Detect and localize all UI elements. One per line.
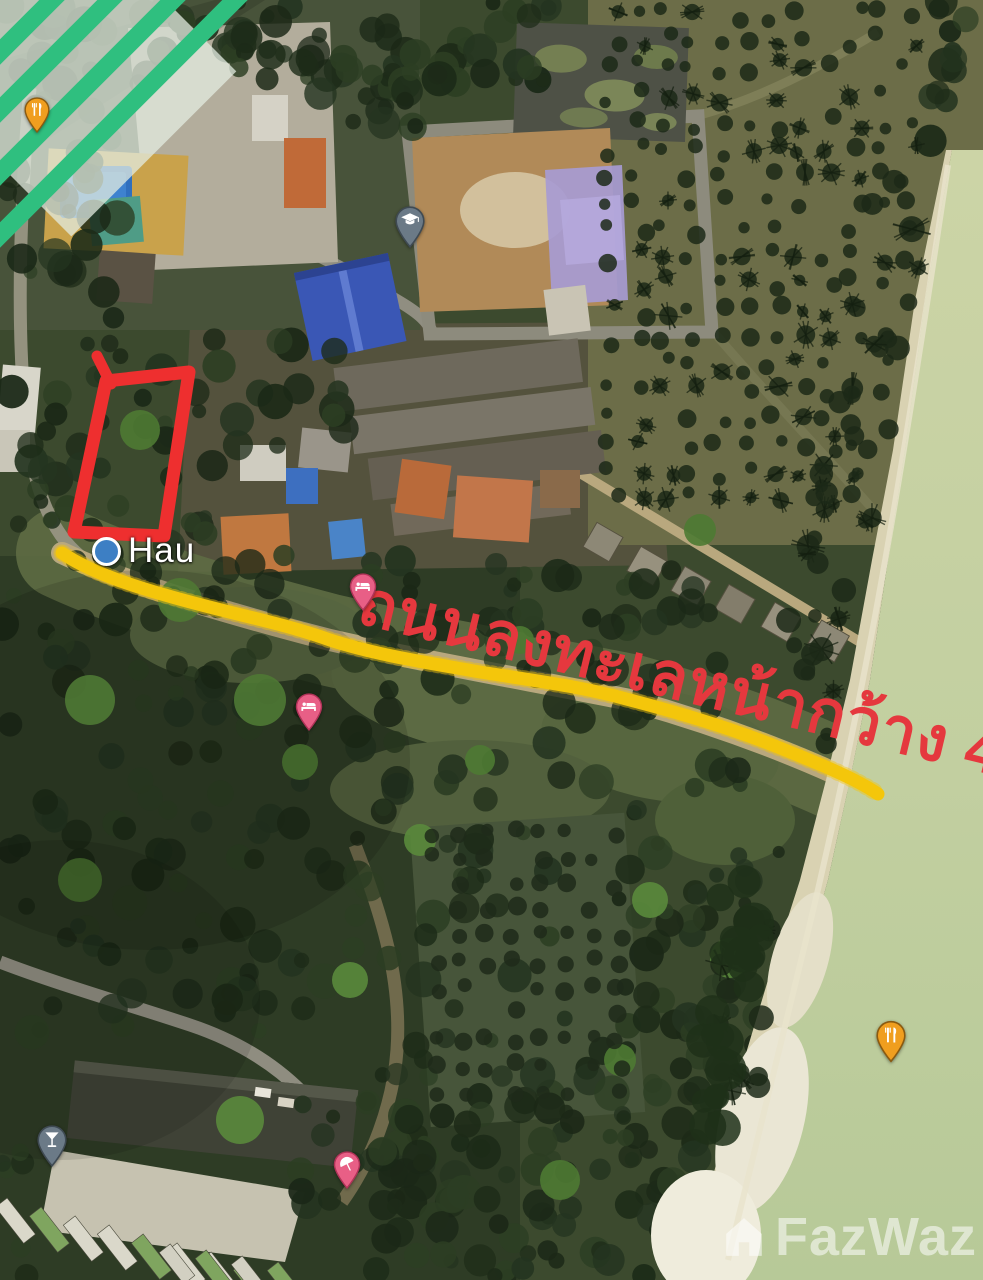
map-pins xyxy=(0,0,983,1280)
watermark-text: FazWaz xyxy=(775,1206,977,1268)
hotel-pin-1[interactable] xyxy=(349,573,377,616)
restaurant-pin-1[interactable] xyxy=(24,97,50,138)
fazwaz-logo-icon xyxy=(721,1214,767,1260)
hotel-pin-2[interactable] xyxy=(295,693,323,736)
satellite-map[interactable]: Hau ถนนลงทะเลหน้ากว้าง 4 เม FazWaz xyxy=(0,0,983,1280)
beach-pin[interactable] xyxy=(333,1151,361,1194)
restaurant-pin-2[interactable] xyxy=(876,1020,906,1068)
bar-pin[interactable] xyxy=(37,1125,67,1172)
fazwaz-watermark: FazWaz xyxy=(721,1206,977,1268)
school-pin[interactable] xyxy=(395,206,425,253)
